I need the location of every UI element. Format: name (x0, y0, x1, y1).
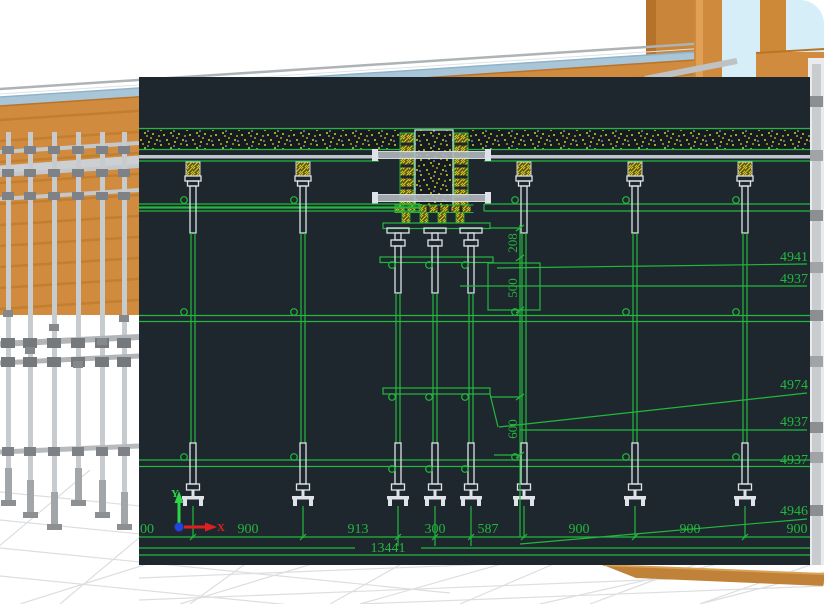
base-jack (27, 480, 34, 514)
base-plate (734, 496, 756, 500)
elevation-label: 4937 (780, 415, 808, 430)
base-plate (513, 496, 535, 500)
vertical-dim-label: 600 (505, 419, 520, 439)
coupler (97, 338, 107, 345)
coupler (48, 447, 60, 456)
timber-pad (738, 162, 752, 176)
dim-label: 900 (238, 522, 259, 537)
coupler (96, 447, 108, 456)
timber-pad (296, 162, 310, 176)
coupler (809, 150, 823, 161)
base-jack (99, 480, 106, 514)
timber-pad (517, 162, 531, 176)
coupler (809, 356, 823, 367)
coupler (96, 192, 108, 200)
elevation-label: 4941 (780, 250, 808, 265)
coupler (1, 338, 15, 348)
base-jack (51, 492, 58, 526)
coupler (24, 192, 36, 200)
base-plate (182, 496, 204, 500)
coupler (118, 169, 130, 177)
base-plate (460, 496, 482, 500)
base-plate (1, 500, 16, 506)
plywood-sheathing (484, 155, 810, 159)
base-jack (121, 492, 128, 526)
plywood-sheathing (139, 155, 379, 159)
base-plate (424, 496, 446, 500)
coupler (96, 169, 108, 177)
y-axis-label: Y (171, 488, 179, 500)
total-dim-label: 13441 (371, 541, 406, 556)
coupler (809, 422, 823, 433)
coupler (49, 324, 59, 331)
coupler (72, 146, 84, 154)
elevation-label: 4937 (780, 272, 808, 287)
coupler (809, 210, 823, 221)
coupler (117, 338, 131, 348)
coupler (2, 169, 14, 177)
waler-pipe (375, 152, 488, 159)
vertical-dim-label: 500 (505, 278, 520, 298)
base-plate (387, 496, 409, 500)
coupler (117, 357, 131, 367)
coupler (809, 96, 823, 107)
coupler (1, 357, 15, 367)
coupler (2, 192, 14, 200)
coupler (48, 192, 60, 200)
elevation-label: 4946 (780, 504, 808, 519)
coupler (809, 505, 823, 516)
coupler (47, 357, 61, 367)
base-plate (23, 512, 38, 518)
vertical-dim-label: 208 (505, 233, 520, 253)
coupler (47, 338, 61, 348)
base-jack (5, 468, 12, 502)
coupler (118, 192, 130, 200)
cad-drawing-viewport[interactable]: Y X 00 900 913 300 587 900 900 900 13441… (139, 77, 810, 565)
scaffold-right-post (808, 58, 824, 565)
base-plate (624, 496, 646, 500)
coupler (809, 262, 823, 273)
base-plate (292, 496, 314, 500)
coupler (71, 338, 85, 348)
base-plate (117, 524, 132, 530)
coupler (73, 361, 83, 368)
coupler (24, 169, 36, 177)
coupler (809, 310, 823, 321)
coupler (48, 146, 60, 154)
dim-label: 900 (787, 522, 808, 537)
elevation-label: 4937 (780, 453, 808, 468)
base-plate (47, 524, 62, 530)
coupler (24, 447, 36, 456)
coupler (24, 146, 36, 154)
coupler (119, 315, 129, 322)
composite-render-image: Y X 00 900 913 300 587 900 900 900 13441… (0, 0, 824, 604)
coupler (23, 338, 37, 348)
coupler (2, 447, 14, 456)
base-plate (71, 500, 86, 506)
coupler (2, 146, 14, 154)
ucs-origin-icon (175, 523, 184, 532)
elevation-label: 4974 (780, 378, 808, 393)
coupler (23, 357, 37, 367)
coupler (72, 192, 84, 200)
coupler (48, 169, 60, 177)
dim-label: 00 (140, 522, 154, 537)
coupler (96, 146, 108, 154)
dim-label: 900 (680, 522, 701, 537)
coupler (72, 169, 84, 177)
coupler (95, 357, 109, 367)
base-jack (75, 468, 82, 502)
waler-pipe (375, 195, 488, 202)
dim-label: 300 (425, 522, 446, 537)
x-axis-label: X (217, 522, 225, 534)
coupler (25, 347, 35, 354)
coupler (72, 447, 84, 456)
dim-label: 587 (478, 522, 499, 537)
coupler (118, 146, 130, 154)
dim-label: 913 (348, 522, 369, 537)
timber-pad (186, 162, 200, 176)
timber-pad (628, 162, 642, 176)
coupler (118, 447, 130, 456)
dim-label: 900 (569, 522, 590, 537)
coupler (809, 452, 823, 463)
coupler (3, 310, 13, 317)
base-plate (95, 512, 110, 518)
